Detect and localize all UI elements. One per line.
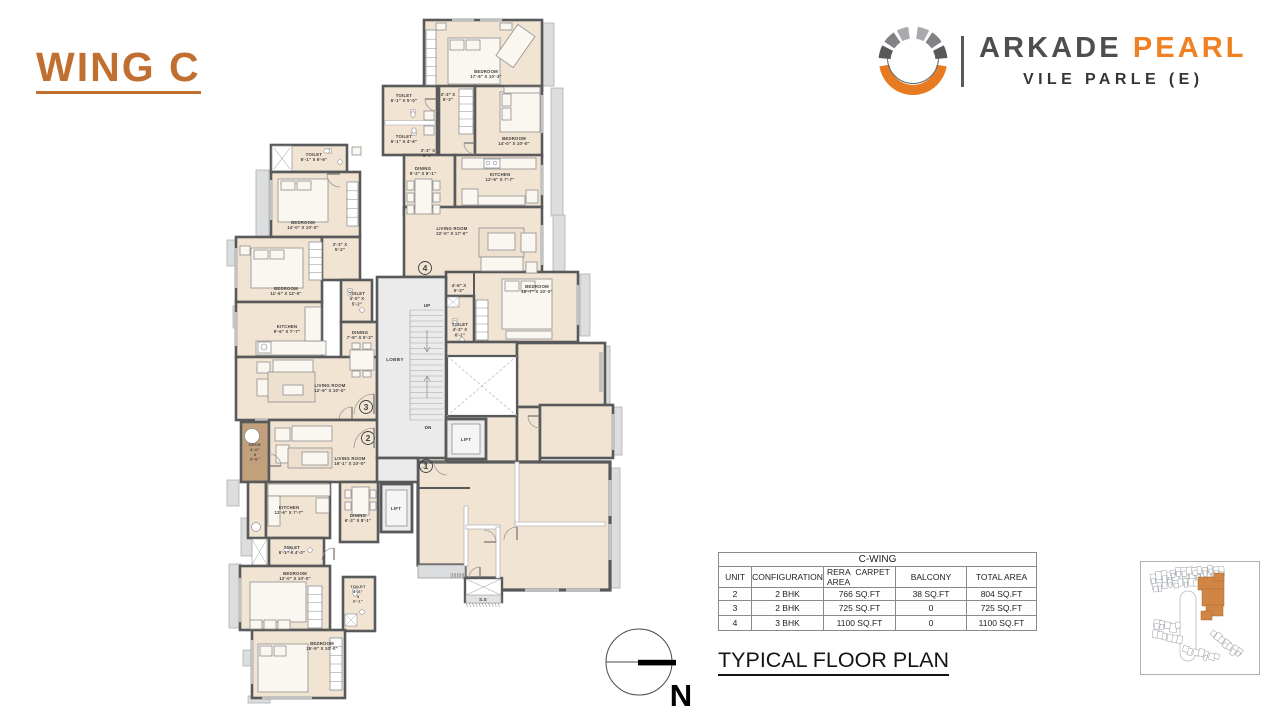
svg-text:LOBBY: LOBBY bbox=[386, 357, 404, 362]
svg-text:12'-9" X 10'-0": 12'-9" X 10'-0" bbox=[314, 388, 346, 393]
svg-text:14'-0" X 10'-0": 14'-0" X 10'-0" bbox=[498, 141, 530, 146]
svg-text:9'-6" X 7'-7": 9'-6" X 7'-7" bbox=[274, 329, 300, 334]
svg-text:4: 4 bbox=[423, 263, 428, 273]
svg-text:6'-1" X 6'-6": 6'-1" X 6'-6" bbox=[301, 157, 327, 162]
svg-text:1: 1 bbox=[424, 461, 429, 471]
svg-text:6'-1" X 4'-0": 6'-1" X 4'-0" bbox=[279, 550, 305, 555]
svg-text:5'-3": 5'-3" bbox=[454, 288, 464, 293]
svg-text:6'-1" X 5'-0": 6'-1" X 5'-0" bbox=[391, 98, 417, 103]
svg-text:5'-2": 5'-2" bbox=[335, 247, 345, 252]
svg-text:16'-1" X 10'-0": 16'-1" X 10'-0" bbox=[334, 461, 366, 466]
svg-text:LIFT: LIFT bbox=[461, 437, 472, 442]
svg-text:15'-7" X 10'-0": 15'-7" X 10'-0" bbox=[521, 289, 553, 294]
svg-text:12'-0" X 10'-0": 12'-0" X 10'-0" bbox=[279, 576, 311, 581]
svg-text:DN: DN bbox=[425, 425, 432, 430]
svg-text:3'-7": 3'-7" bbox=[423, 153, 433, 158]
svg-text:12'-6" X 7'-7": 12'-6" X 7'-7" bbox=[486, 177, 515, 182]
svg-text:N: N bbox=[670, 678, 692, 713]
svg-text:9'-6": 9'-6" bbox=[250, 457, 260, 462]
svg-text:9'-2" X 8'-1": 9'-2" X 8'-1" bbox=[410, 171, 436, 176]
svg-text:17'-5" X 10'-3": 17'-5" X 10'-3" bbox=[470, 74, 502, 79]
svg-text:3: 3 bbox=[364, 402, 369, 412]
svg-text:5'-2": 5'-2" bbox=[352, 301, 362, 306]
svg-text:6'-1": 6'-1" bbox=[455, 332, 465, 337]
svg-text:14'-0" X 10'-0": 14'-0" X 10'-0" bbox=[287, 225, 319, 230]
svg-text:6'-1": 6'-1" bbox=[353, 599, 363, 604]
svg-text:6'-3": 6'-3" bbox=[443, 97, 453, 102]
svg-text:12'-6" X 7'-7": 12'-6" X 7'-7" bbox=[275, 510, 304, 515]
svg-text:15'-9" X 10'-0": 15'-9" X 10'-0" bbox=[306, 646, 338, 651]
svg-text:11'-6" X 12'-0": 11'-6" X 12'-0" bbox=[270, 291, 301, 296]
svg-text:7'-9" X 5'-2": 7'-9" X 5'-2" bbox=[347, 335, 373, 340]
svg-text:LIFT: LIFT bbox=[391, 506, 402, 511]
svg-text:6'-1" X 4'-6": 6'-1" X 4'-6" bbox=[391, 139, 417, 144]
svg-text:6'-3" X 8'-1": 6'-3" X 8'-1" bbox=[345, 518, 371, 523]
svg-text:2: 2 bbox=[366, 433, 371, 443]
svg-text:22'-0" X 17'-0": 22'-0" X 17'-0" bbox=[436, 231, 468, 236]
svg-text:S.S: S.S bbox=[479, 597, 487, 602]
svg-text:UP: UP bbox=[424, 303, 430, 308]
